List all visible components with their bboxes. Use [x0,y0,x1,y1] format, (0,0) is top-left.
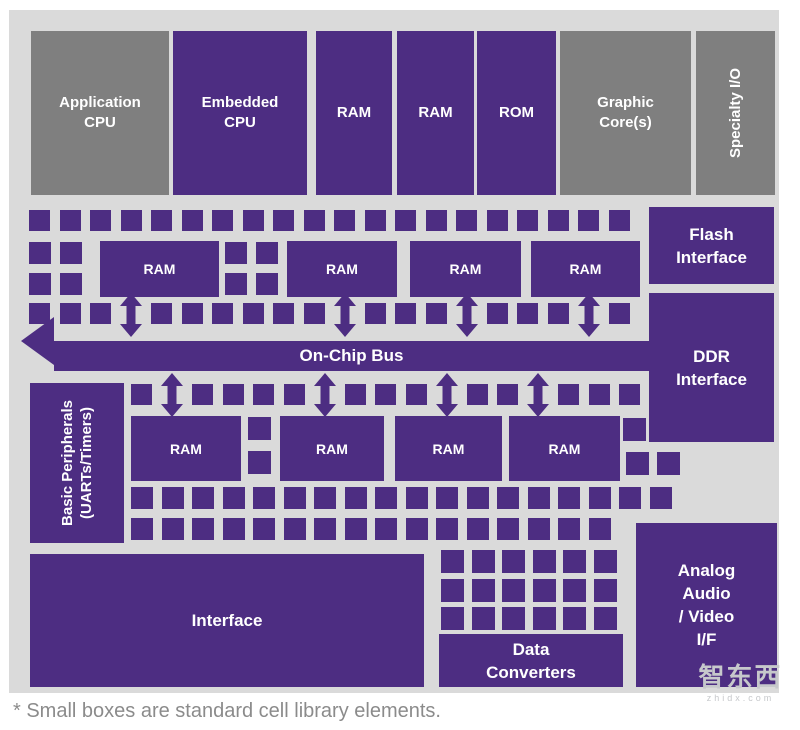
standard-cell-box [192,384,213,405]
standard-cell-box [426,303,447,324]
standard-cell-box [502,607,525,630]
standard-cell-box [441,579,464,602]
bus-connection-arrow-icon [436,373,458,417]
standard-cell-box [151,303,172,324]
embedded-cpu: EmbeddedCPU [173,31,307,195]
ram-lower-1-label: RAM [170,441,202,457]
standard-cell-box [131,487,153,509]
on-chip-bus-label: On-Chip Bus [300,346,404,366]
standard-cell-box [284,487,306,509]
standard-cell-box [517,210,538,231]
standard-cell-box [151,210,172,231]
standard-cell-box [436,518,458,540]
standard-cell-box [121,210,142,231]
standard-cell-box [467,518,489,540]
standard-cell-box [578,210,599,231]
ram-upper-1: RAM [100,241,219,297]
ram-upper-2-label: RAM [326,261,358,277]
watermark: 智东西 zhidx.com [688,662,793,704]
standard-cell-box [29,210,50,231]
embedded-cpu-label: Embedded [202,93,279,113]
data-converters-label: Data [513,638,550,661]
ram-top-2-label: RAM [418,103,452,123]
on-chip-bus: On-Chip Bus [54,341,649,371]
standard-cell-box [243,303,264,324]
standard-cell-box [472,607,495,630]
soc-floorplan-diagram: ApplicationCPUEmbeddedCPURAMRAMROMGraphi… [0,0,800,730]
standard-cell-box [589,384,610,405]
standard-cell-box [528,518,550,540]
ram-upper-4: RAM [531,241,640,297]
standard-cell-box [345,518,367,540]
bus-connection-arrow-icon [314,373,336,417]
standard-cell-box [497,487,519,509]
standard-cell-box [589,518,611,540]
ram-lower-3: RAM [395,416,502,481]
standard-cell-box [533,607,556,630]
watermark-site-text: zhidx.com [688,692,793,704]
standard-cell-box [441,550,464,573]
standard-cell-box [29,242,51,264]
specialty-io-label: Specialty I/O [726,31,746,195]
standard-cell-box [345,487,367,509]
application-cpu: ApplicationCPU [31,31,169,195]
rom-top: ROM [477,31,556,195]
standard-cell-box [253,487,275,509]
standard-cell-box [497,384,518,405]
standard-cell-box [558,384,579,405]
ram-top-1: RAM [316,31,392,195]
standard-cell-box [502,550,525,573]
ddr-interface-label: Interface [676,368,747,391]
ddr-interface-label: DDR [693,345,730,368]
footnote: * Small boxes are standard cell library … [13,700,441,723]
ram-lower-4-label: RAM [549,441,581,457]
standard-cell-box [626,452,649,475]
interface-block-label: Interface [192,609,263,632]
analog-audio-video-if-label: Audio [682,582,730,605]
standard-cell-box [212,210,233,231]
basic-peripherals-label: Basic Peripherals [58,383,77,543]
rom-top-label: ROM [499,103,534,123]
standard-cell-box [223,518,245,540]
flash-interface: FlashInterface [649,207,774,284]
bus-connection-arrow-icon [161,373,183,417]
ram-upper-3: RAM [410,241,521,297]
standard-cell-box [657,452,680,475]
standard-cell-box [182,210,203,231]
chip-canvas: ApplicationCPUEmbeddedCPURAMRAMROMGraphi… [9,10,779,693]
standard-cell-box [248,417,271,440]
standard-cell-box [162,487,184,509]
standard-cell-box [472,550,495,573]
standard-cell-box [192,518,214,540]
analog-audio-video-if-label: Analog [678,559,736,582]
standard-cell-box [334,210,355,231]
bus-connection-arrow-icon [120,293,142,337]
bus-connection-arrow-icon [578,293,600,337]
standard-cell-box [533,550,556,573]
standard-cell-box [248,451,271,474]
standard-cell-box [365,210,386,231]
ram-upper-2: RAM [287,241,397,297]
standard-cell-box [60,303,81,324]
standard-cell-box [533,579,556,602]
standard-cell-box [548,303,569,324]
standard-cell-box [563,579,586,602]
standard-cell-box [212,303,233,324]
standard-cell-box [406,518,428,540]
standard-cell-box [284,518,306,540]
basic-peripherals-vertical-label: Basic Peripherals(UARTs/Timers) [58,383,96,543]
embedded-cpu-label: CPU [224,113,256,133]
standard-cell-box [256,242,278,264]
standard-cell-box [426,210,447,231]
basic-peripherals-label: (UARTs/Timers) [77,383,96,543]
standard-cell-box [467,487,489,509]
analog-audio-video-if-label: I/F [697,628,717,651]
standard-cell-box [472,579,495,602]
basic-peripherals: Basic Peripherals(UARTs/Timers) [30,383,124,543]
standard-cell-box [456,210,477,231]
standard-cell-box [497,518,519,540]
application-cpu-label: CPU [84,113,116,133]
ram-lower-2-label: RAM [316,441,348,457]
standard-cell-box [594,607,617,630]
standard-cell-box [192,487,214,509]
on-chip-bus-arrowhead [21,317,54,365]
standard-cell-box [375,518,397,540]
standard-cell-box [619,487,641,509]
standard-cell-box [225,242,247,264]
standard-cell-box [162,518,184,540]
graphic-cores-label: Graphic [597,93,654,113]
standard-cell-box [395,210,416,231]
analog-audio-video-if-label: / Video [679,605,734,628]
standard-cell-box [467,384,488,405]
standard-cell-box [273,210,294,231]
standard-cell-box [436,487,458,509]
standard-cell-box [304,210,325,231]
standard-cell-box [406,384,427,405]
bus-connection-arrow-icon [334,293,356,337]
standard-cell-box [60,242,82,264]
standard-cell-box [273,303,294,324]
standard-cell-box [375,487,397,509]
standard-cell-box [517,303,538,324]
ram-upper-4-label: RAM [570,261,602,277]
standard-cell-box [243,210,264,231]
standard-cell-box [131,384,152,405]
standard-cell-box [528,487,550,509]
standard-cell-box [304,303,325,324]
standard-cell-box [609,210,630,231]
application-cpu-label: Application [59,93,141,113]
standard-cell-box [609,303,630,324]
standard-cell-box [487,303,508,324]
standard-cell-box [365,303,386,324]
specialty-io-vertical-label: Specialty I/O [726,31,746,195]
flash-interface-label: Interface [676,246,747,269]
standard-cell-box [548,210,569,231]
ram-lower-3-label: RAM [433,441,465,457]
standard-cell-box [395,303,416,324]
standard-cell-box [29,273,51,295]
ram-top-2: RAM [397,31,474,195]
standard-cell-box [90,210,111,231]
ram-lower-2: RAM [280,416,384,481]
standard-cell-box [225,273,247,295]
standard-cell-box [563,607,586,630]
standard-cell-box [558,518,580,540]
flash-interface-label: Flash [689,223,733,246]
standard-cell-box [563,550,586,573]
bus-connection-arrow-icon [527,373,549,417]
bus-connection-arrow-icon [456,293,478,337]
ram-upper-3-label: RAM [450,261,482,277]
ram-lower-4: RAM [509,416,620,481]
standard-cell-box [131,518,153,540]
standard-cell-box [90,303,111,324]
standard-cell-box [375,384,396,405]
standard-cell-box [502,579,525,602]
data-converters: DataConverters [439,634,623,687]
ram-upper-1-label: RAM [144,261,176,277]
standard-cell-box [650,487,672,509]
standard-cell-box [182,303,203,324]
standard-cell-box [284,384,305,405]
interface-block: Interface [30,554,424,687]
specialty-io: Specialty I/O [696,31,775,195]
standard-cell-box [589,487,611,509]
standard-cell-box [256,273,278,295]
watermark-logo-text: 智东西 [688,662,793,692]
graphic-cores: GraphicCore(s) [560,31,691,195]
standard-cell-box [60,273,82,295]
standard-cell-box [406,487,428,509]
data-converters-label: Converters [486,661,576,684]
standard-cell-box [345,384,366,405]
standard-cell-box [253,518,275,540]
standard-cell-box [594,579,617,602]
standard-cell-box [223,487,245,509]
standard-cell-box [623,418,646,441]
ddr-interface: DDRInterface [649,293,774,442]
standard-cell-box [594,550,617,573]
graphic-cores-label: Core(s) [599,113,652,133]
standard-cell-box [441,607,464,630]
standard-cell-box [314,518,336,540]
standard-cell-box [487,210,508,231]
standard-cell-box [314,487,336,509]
ram-top-1-label: RAM [337,103,371,123]
standard-cell-box [223,384,244,405]
standard-cell-box [619,384,640,405]
standard-cell-box [60,210,81,231]
standard-cell-box [558,487,580,509]
ram-lower-1: RAM [131,416,241,481]
standard-cell-box [253,384,274,405]
